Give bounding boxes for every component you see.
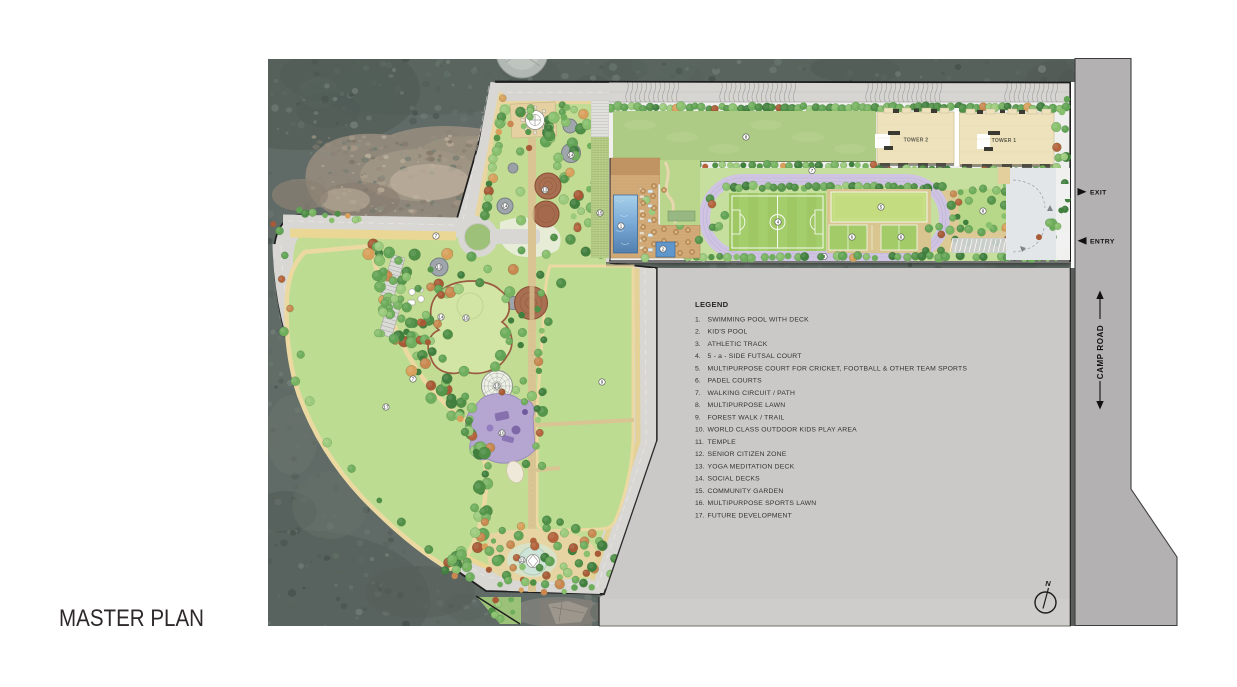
svg-text:4.: 4. <box>695 353 701 360</box>
svg-text:PADEL COURTS: PADEL COURTS <box>708 378 763 385</box>
svg-text:12: 12 <box>543 188 548 193</box>
svg-text:16.: 16. <box>695 500 705 507</box>
svg-text:WALKING CIRCUIT / PATH: WALKING CIRCUIT / PATH <box>708 390 796 397</box>
svg-text:LEGEND: LEGEND <box>695 300 729 309</box>
svg-text:TOWER 1: TOWER 1 <box>992 138 1017 144</box>
svg-text:TEMPLE: TEMPLE <box>708 439 737 446</box>
svg-text:13: 13 <box>437 265 442 270</box>
svg-text:ATHLETIC TRACK: ATHLETIC TRACK <box>708 341 768 348</box>
svg-text:15.: 15. <box>695 488 705 495</box>
svg-text:10.: 10. <box>695 427 705 434</box>
svg-text:1.: 1. <box>695 316 701 323</box>
svg-text:11: 11 <box>520 558 525 563</box>
svg-text:3.: 3. <box>695 341 701 348</box>
svg-text:7.: 7. <box>695 390 701 397</box>
svg-text:MULTIPURPOSE SPORTS LAWN: MULTIPURPOSE SPORTS LAWN <box>708 500 817 507</box>
svg-text:9.: 9. <box>695 414 701 421</box>
svg-text:MULTIPURPOSE LAWN: MULTIPURPOSE LAWN <box>708 402 786 409</box>
svg-text:TOWER 2: TOWER 2 <box>904 138 929 144</box>
svg-text:SOCIAL DECKS: SOCIAL DECKS <box>708 476 761 483</box>
svg-text:YOGA MEDITATION DECK: YOGA MEDITATION DECK <box>708 463 795 470</box>
svg-text:14: 14 <box>503 204 508 209</box>
svg-text:2.: 2. <box>695 329 701 336</box>
svg-text:14: 14 <box>439 315 444 320</box>
svg-text:16: 16 <box>464 316 469 321</box>
svg-text:10: 10 <box>500 431 505 436</box>
svg-text:SENIOR CITIZEN ZONE: SENIOR CITIZEN ZONE <box>708 451 787 458</box>
svg-text:MASTER PLAN: MASTER PLAN <box>59 605 204 632</box>
svg-text:17.: 17. <box>695 512 705 519</box>
svg-text:EXIT: EXIT <box>1090 189 1107 196</box>
svg-text:11.: 11. <box>695 439 704 446</box>
svg-text:ENTRY: ENTRY <box>1090 238 1115 245</box>
svg-text:6.: 6. <box>695 378 701 385</box>
svg-text:SWIMMING POOL WITH DECK: SWIMMING POOL WITH DECK <box>708 316 810 323</box>
svg-text:14.: 14. <box>695 476 705 483</box>
svg-text:5.: 5. <box>695 365 701 372</box>
svg-text:KID'S POOL: KID'S POOL <box>708 329 748 336</box>
svg-text:COMMUNITY GARDEN: COMMUNITY GARDEN <box>708 488 784 495</box>
svg-text:13: 13 <box>495 384 500 389</box>
svg-text:MULTIPURPOSE COURT FOR CRICKET: MULTIPURPOSE COURT FOR CRICKET, FOOTBALL… <box>708 365 968 372</box>
svg-text:8.: 8. <box>695 402 701 409</box>
svg-text:15: 15 <box>598 211 603 216</box>
svg-text:13.: 13. <box>695 463 705 470</box>
svg-text:12.: 12. <box>695 451 705 458</box>
svg-text:WORLD CLASS OUTDOOR KIDS PLAY: WORLD CLASS OUTDOOR KIDS PLAY AREA <box>708 427 858 434</box>
svg-text:17: 17 <box>384 405 389 410</box>
svg-text:N: N <box>1045 579 1051 588</box>
svg-text:FOREST WALK / TRAIL: FOREST WALK / TRAIL <box>708 414 785 421</box>
svg-text:5 - a - SIDE FUTSAL COURT: 5 - a - SIDE FUTSAL COURT <box>708 353 802 360</box>
svg-text:CAMP ROAD: CAMP ROAD <box>1096 325 1105 380</box>
svg-text:FUTURE DEVELOPMENT: FUTURE DEVELOPMENT <box>708 512 792 519</box>
svg-text:14: 14 <box>569 153 574 158</box>
